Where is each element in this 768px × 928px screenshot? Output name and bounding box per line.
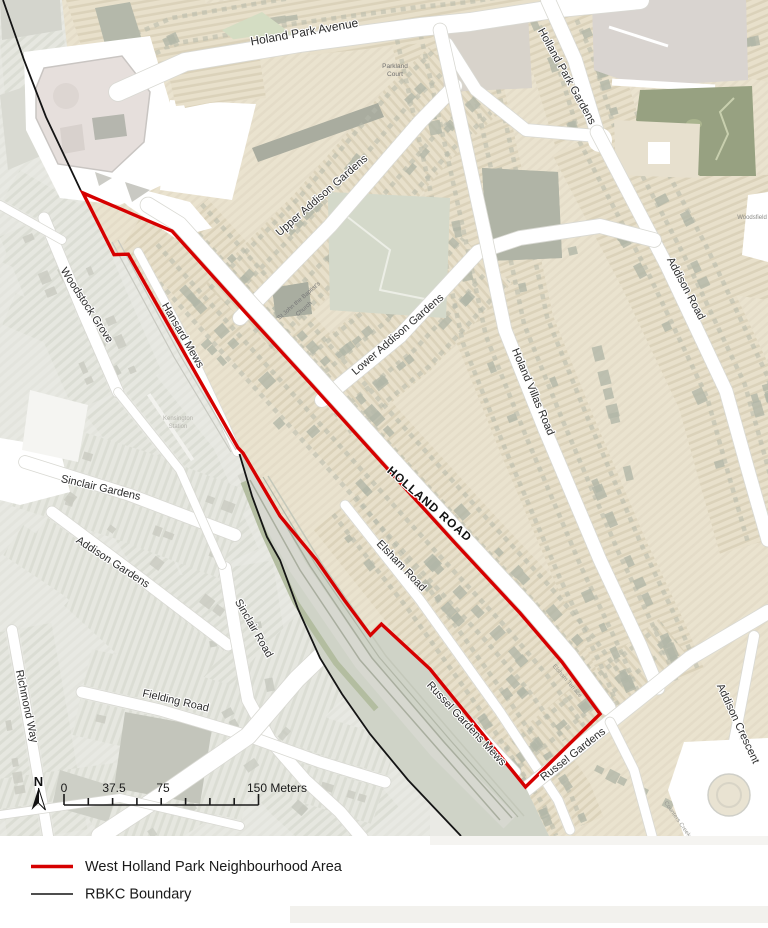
- svg-text:150 Meters: 150 Meters: [247, 781, 307, 795]
- svg-text:75: 75: [156, 781, 170, 795]
- svg-text:0: 0: [61, 781, 68, 795]
- svg-text:Kensington: Kensington: [163, 416, 193, 422]
- svg-text:Station: Station: [169, 424, 188, 430]
- svg-text:West Holland Park Neighbourhoo: West Holland Park Neighbourhood Area: [85, 859, 343, 875]
- svg-text:Woodsfield: Woodsfield: [737, 215, 767, 221]
- svg-text:Court: Court: [387, 71, 403, 78]
- svg-text:N: N: [34, 774, 43, 789]
- svg-text:RBKC Boundary: RBKC Boundary: [85, 887, 192, 903]
- svg-text:Parkland: Parkland: [382, 63, 408, 70]
- svg-text:37.5: 37.5: [102, 781, 126, 795]
